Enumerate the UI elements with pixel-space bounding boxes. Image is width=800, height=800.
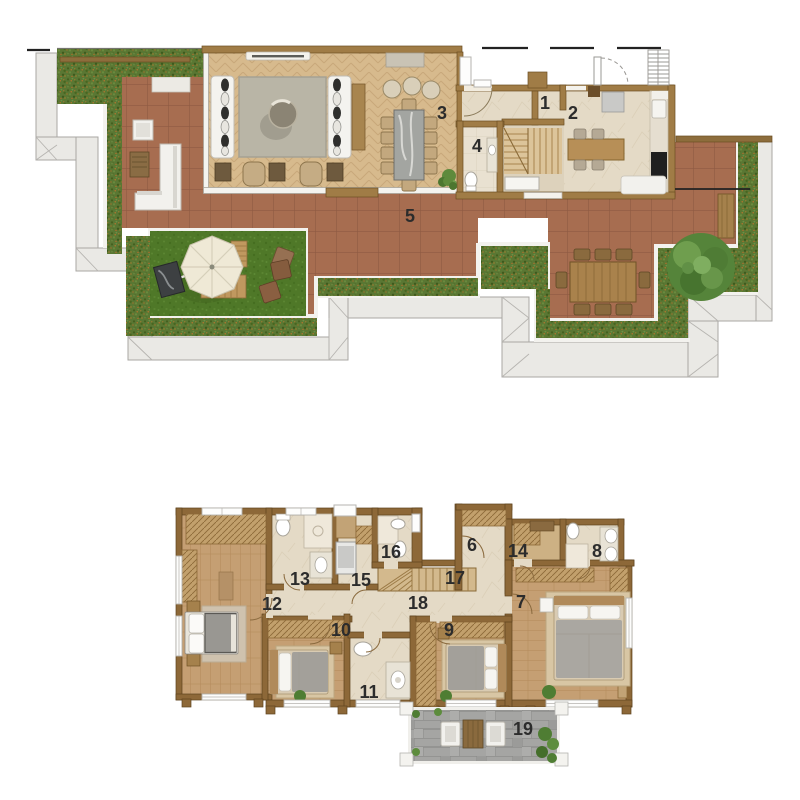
- svg-text:5: 5: [405, 206, 415, 226]
- svg-text:7: 7: [516, 592, 526, 612]
- svg-text:4: 4: [472, 136, 482, 156]
- svg-text:12: 12: [262, 594, 282, 614]
- svg-text:19: 19: [513, 719, 533, 739]
- svg-text:3: 3: [437, 103, 447, 123]
- svg-text:17: 17: [445, 568, 465, 588]
- svg-text:8: 8: [592, 541, 602, 561]
- svg-text:1: 1: [540, 93, 550, 113]
- svg-text:11: 11: [359, 682, 378, 702]
- svg-text:9: 9: [444, 620, 454, 640]
- svg-text:18: 18: [408, 593, 428, 613]
- svg-text:10: 10: [331, 620, 351, 640]
- svg-text:13: 13: [290, 569, 310, 589]
- svg-text:15: 15: [351, 570, 371, 590]
- svg-text:14: 14: [508, 541, 528, 561]
- svg-text:2: 2: [568, 103, 578, 123]
- svg-text:6: 6: [467, 535, 477, 555]
- svg-text:16: 16: [381, 542, 401, 562]
